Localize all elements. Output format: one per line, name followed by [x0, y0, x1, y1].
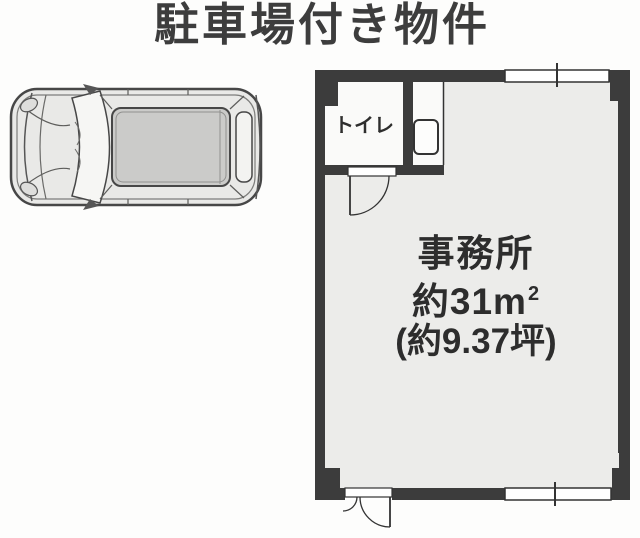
corner-notch-br	[612, 453, 619, 468]
toilet-room-label: トイレ	[334, 109, 394, 138]
entrance-door-icon	[343, 488, 392, 527]
floor-plan-page: 駐車場付き物件	[0, 0, 640, 538]
parked-car-illustration	[8, 82, 266, 212]
page-title: 駐車場付き物件	[0, 0, 640, 50]
office-area-tsubo: (約9.37坪)	[330, 322, 622, 362]
washbasin-icon	[414, 120, 438, 154]
office-room-labels: 事務所 約31m2 (約9.37坪)	[330, 234, 622, 362]
corner-notch-bl	[325, 462, 340, 468]
car-top-view-icon	[8, 82, 266, 212]
sqm-superscript: 2	[528, 283, 540, 305]
office-room-name: 事務所	[330, 234, 622, 274]
office-area-sqm: 約31m2	[330, 274, 622, 322]
